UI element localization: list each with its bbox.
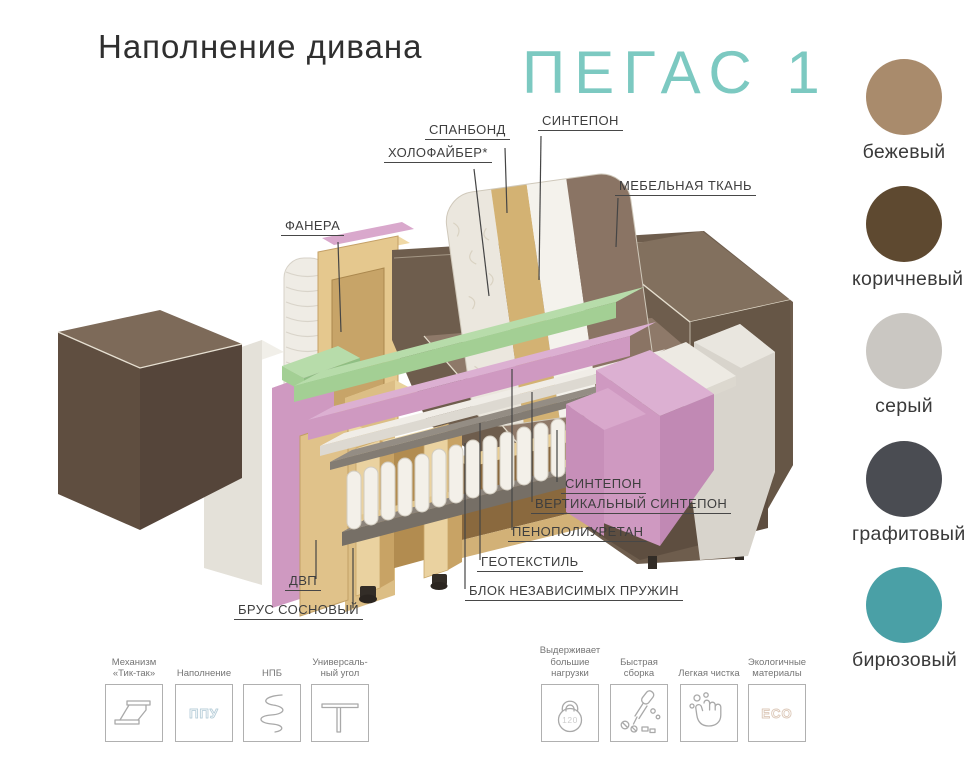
label-holofiber: ХОЛОФАЙБЕР*	[384, 146, 492, 163]
label-fiberboard: ДВП	[285, 574, 321, 591]
swatch-circle	[865, 58, 943, 136]
swatch-circle	[865, 440, 943, 518]
swatch-label: серый	[852, 395, 956, 418]
feature-box	[243, 684, 301, 742]
swatch-beige: бежевый	[852, 58, 956, 164]
feature-label: Экологичные материалы	[748, 646, 806, 680]
swatch-graphite: графитовый	[852, 440, 956, 546]
feature-label: Легкая чистка	[678, 646, 739, 680]
swatch-circle	[865, 566, 943, 644]
feature-universal-corner: Универсаль- ный угол	[298, 646, 382, 742]
swatch-circle	[865, 312, 943, 390]
swatch-turquoise: бирюзовый	[852, 566, 956, 672]
feature-label: Механизм «Тик-так»	[112, 646, 156, 680]
poster: Наполнение дивана ПЕГАС 1	[0, 0, 974, 772]
swatch-label: графитовый	[852, 523, 956, 546]
label-furniture-fabric: МЕБЕЛЬНАЯ ТКАНЬ	[615, 179, 756, 196]
screwdriver-icon	[615, 689, 663, 737]
label-polyurethane: ПЕНОПОЛИУРЕТАН	[508, 525, 647, 542]
ppu-icon: ППУ	[180, 689, 228, 737]
feature-label: Быстрая сборка	[620, 646, 658, 680]
feature-box	[680, 684, 738, 742]
svg-text:ППУ: ППУ	[189, 706, 219, 721]
hand-cleaning-icon	[685, 689, 733, 737]
feature-box	[105, 684, 163, 742]
label-spring-block: БЛОК НЕЗАВИСИМЫХ ПРУЖИН	[465, 584, 683, 601]
swatch-gray: серый	[852, 312, 956, 418]
svg-text:ECO: ECO	[761, 706, 792, 721]
swatch-label: бирюзовый	[852, 649, 956, 672]
feature-box	[311, 684, 369, 742]
swatch-brown: коричневый	[852, 185, 956, 291]
kettlebell-icon: 120	[546, 689, 594, 737]
swatch-label: коричневый	[852, 268, 956, 291]
feature-label: НПБ	[262, 646, 282, 680]
universal-corner-icon	[316, 689, 364, 737]
feature-label: Выдерживает большие нагрузки	[540, 646, 600, 680]
label-geotextile: ГЕОТЕКСТИЛЬ	[477, 555, 583, 572]
label-plywood: ФАНЕРА	[281, 219, 344, 236]
feature-box	[610, 684, 668, 742]
feature-box: 120	[541, 684, 599, 742]
feature-label: Универсаль- ный угол	[312, 646, 367, 680]
feature-box: ECO	[748, 684, 806, 742]
label-sintepon-top: СИНТЕПОН	[538, 114, 623, 131]
eco-icon: ECO	[753, 689, 801, 737]
label-sintepon-right: СИНТЕПОН	[561, 477, 646, 494]
feature-eco-materials: Экологичные материалы ECO	[735, 646, 819, 742]
swatch-circle	[865, 185, 943, 263]
svg-text:120: 120	[562, 715, 578, 725]
feature-box: ППУ	[175, 684, 233, 742]
swatch-label: бежевый	[852, 141, 956, 164]
spring-icon	[248, 689, 296, 737]
tick-tack-icon	[110, 689, 158, 737]
label-spunbond: СПАНБОНД	[425, 123, 510, 140]
label-pine-timber: БРУС СОСНОВЫЙ	[234, 603, 363, 620]
label-vertical-sintepon: ВЕРТИКАЛЬНЫЙ СИНТЕПОН	[531, 497, 731, 514]
feature-label: Наполнение	[177, 646, 231, 680]
